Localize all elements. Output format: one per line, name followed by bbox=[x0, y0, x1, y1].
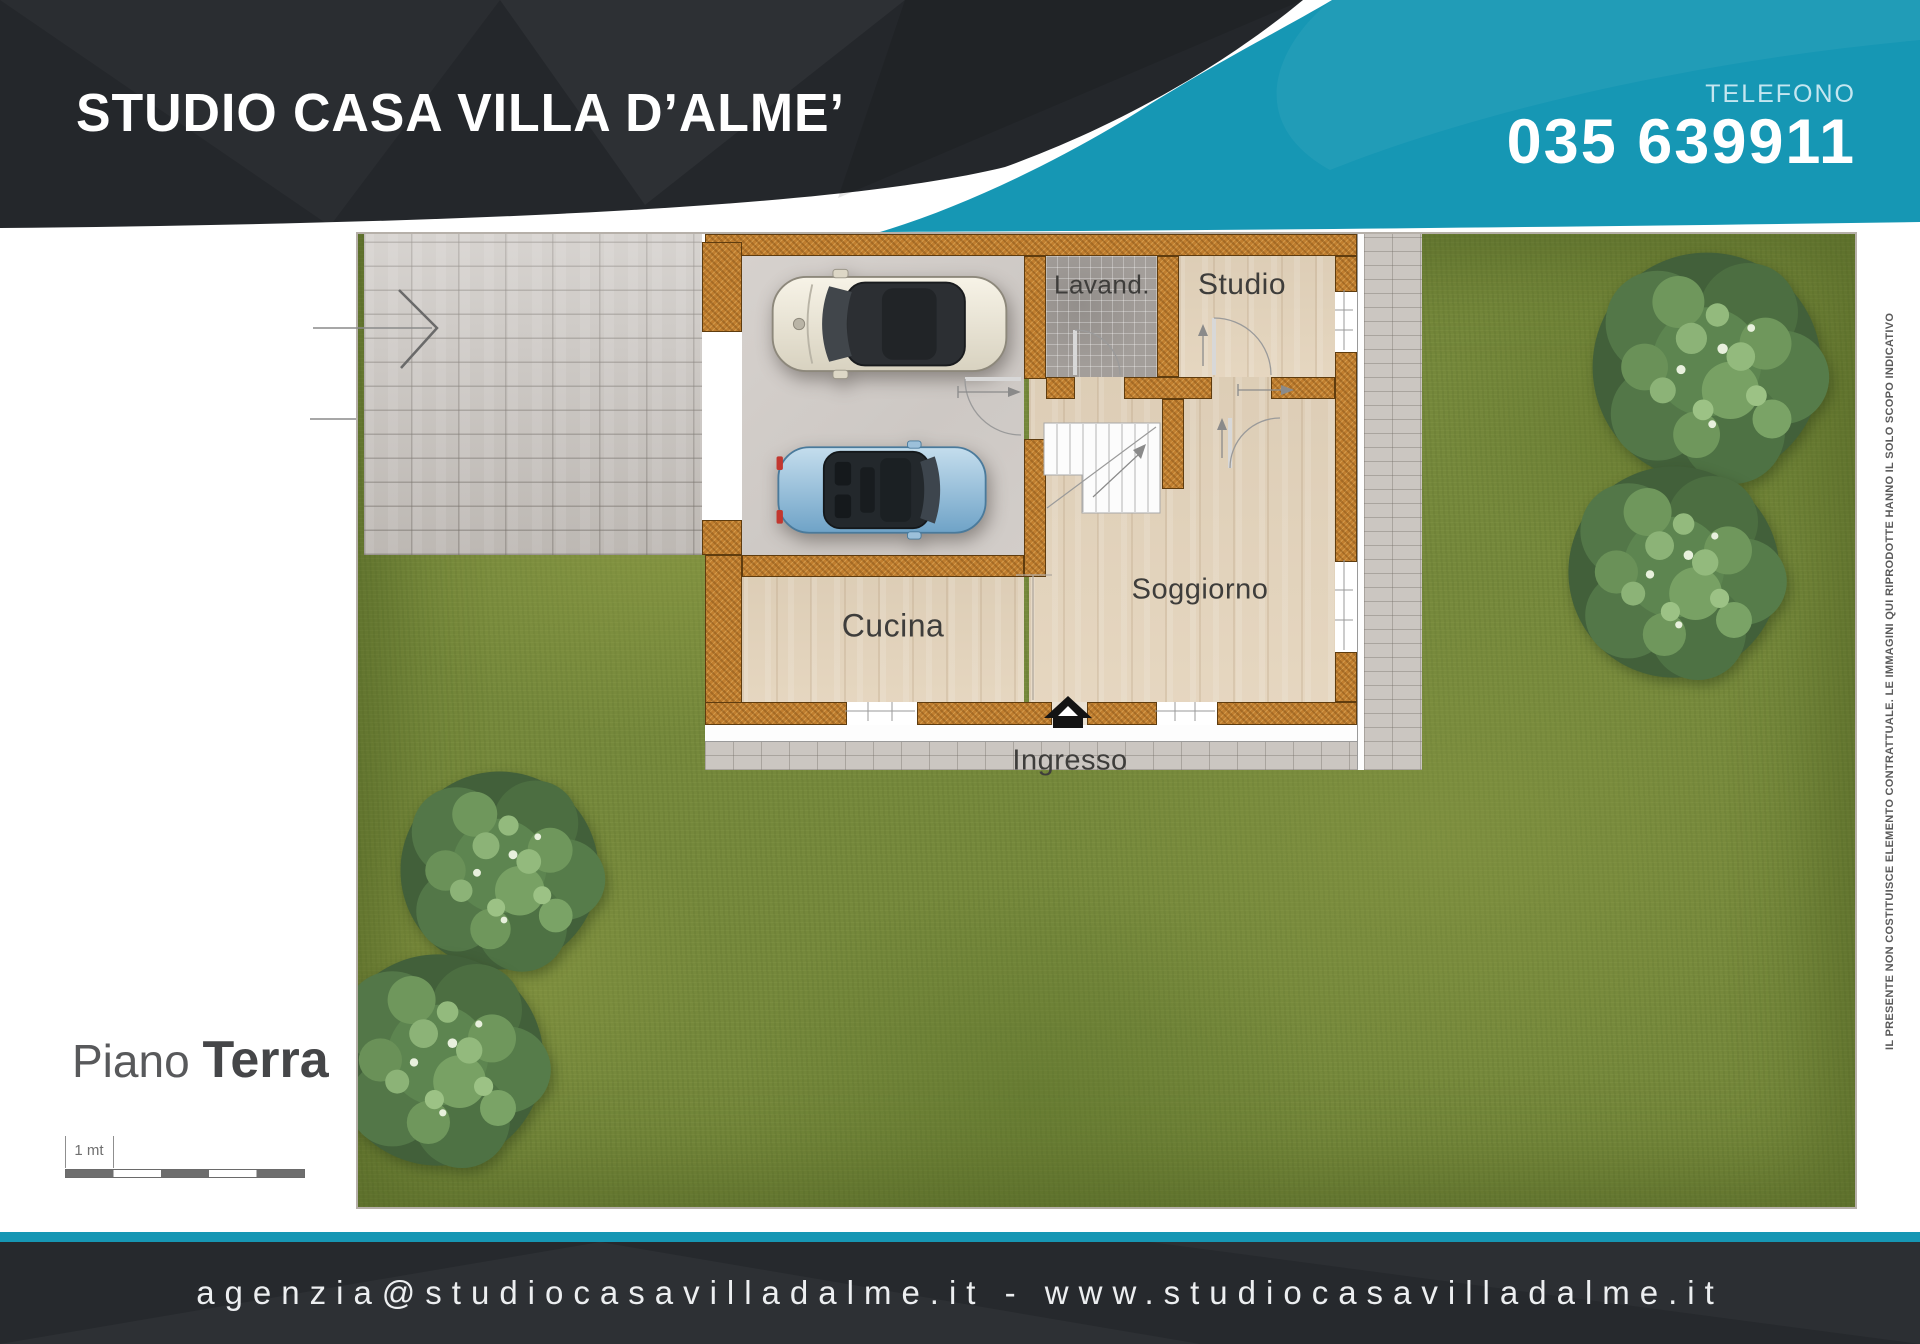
room-label-studio: Studio bbox=[1198, 268, 1286, 302]
entrance-threshold bbox=[1052, 702, 1087, 725]
room-label-soggiorno: Soggiorno bbox=[1132, 574, 1269, 607]
floor-title-prefix: Piano bbox=[72, 1035, 202, 1087]
footer-contact-line: agenzia@studiocasavilladalme.it - www.st… bbox=[0, 1242, 1920, 1344]
tree bbox=[356, 940, 558, 1180]
window-studio-east bbox=[1335, 292, 1357, 352]
blue-car bbox=[770, 440, 994, 540]
window-livingroom-east bbox=[1335, 562, 1357, 652]
wall-segment bbox=[1162, 399, 1184, 489]
phone-number: 035 639911 bbox=[1507, 109, 1856, 175]
scale-bar bbox=[65, 1169, 305, 1178]
room-label-lavanderia: Lavand. bbox=[1054, 270, 1150, 301]
wall-segment bbox=[1157, 256, 1179, 377]
wall-segment bbox=[702, 242, 742, 332]
wall-segment bbox=[705, 555, 742, 725]
walkway-sill-right bbox=[1357, 234, 1364, 770]
window-livingroom-south bbox=[1157, 702, 1217, 725]
entrance-label: Ingresso bbox=[1012, 745, 1127, 778]
white-car bbox=[767, 264, 1012, 384]
agency-name: STUDIO CASA VILLA D’ALME’ bbox=[76, 82, 940, 144]
walkway-right bbox=[1364, 234, 1422, 770]
wall-segment bbox=[702, 520, 742, 555]
wall-segment bbox=[1335, 352, 1357, 562]
wall-segment bbox=[1024, 256, 1046, 379]
wall-segment bbox=[742, 555, 1024, 577]
wall-segment bbox=[1335, 652, 1357, 702]
phone-label: TELEFONO bbox=[1507, 80, 1856, 109]
floor-title-name: Terra bbox=[202, 1031, 328, 1089]
flyer-page: { "header": { "agency_name": "STUDIO CAS… bbox=[0, 0, 1920, 1344]
wall-segment bbox=[1124, 377, 1212, 399]
wall-segment bbox=[1271, 377, 1335, 399]
wall-segment bbox=[917, 702, 1052, 725]
room-label-cucina: Cucina bbox=[842, 608, 945, 645]
phone-block: TELEFONO 035 639911 bbox=[1507, 80, 1856, 175]
wall-segment bbox=[1217, 702, 1357, 725]
window-kitchen bbox=[847, 702, 917, 725]
site-plan: Lavand. Studio Soggiorno Cucina Ingresso bbox=[356, 232, 1857, 1209]
wall-segment bbox=[1335, 256, 1357, 292]
wall-segment bbox=[1046, 377, 1075, 399]
scale-label: 1 mt bbox=[66, 1142, 112, 1159]
footer-accent-stripe bbox=[0, 1232, 1920, 1242]
wall-segment bbox=[1087, 702, 1157, 725]
walkway-sill-bottom bbox=[705, 725, 1357, 742]
wall-segment bbox=[1024, 439, 1046, 577]
tree bbox=[1554, 452, 1794, 692]
scale-tick bbox=[113, 1136, 114, 1168]
floor-title: Piano Terra bbox=[72, 1030, 329, 1090]
legal-disclaimer: IL PRESENTE NON COSTITUISCE ELEMENTO CON… bbox=[1884, 400, 1896, 1050]
footer-bar: agenzia@studiocasavilladalme.it - www.st… bbox=[0, 1242, 1920, 1344]
driveway-paving bbox=[364, 234, 705, 555]
wall-segment bbox=[705, 702, 847, 725]
